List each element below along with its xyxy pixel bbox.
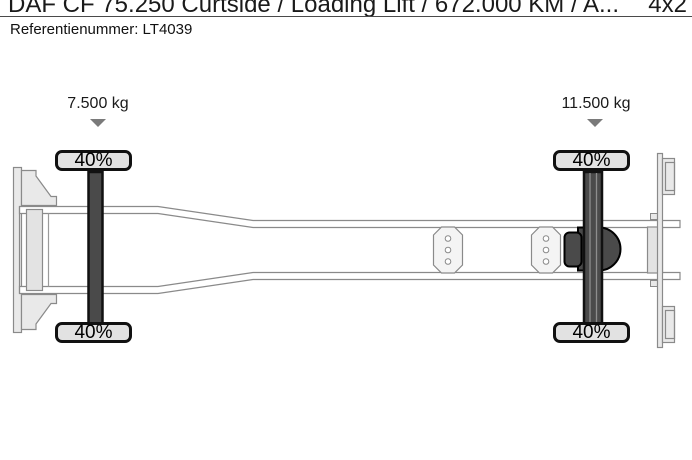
load-arrow-icon (90, 119, 106, 127)
rear-axle-wheel-1: 40% (553, 150, 630, 171)
crossmember-plate-2 (532, 227, 561, 273)
rear-axle (584, 172, 602, 328)
chassis-drawing (0, 0, 692, 460)
tail-lift-frame (658, 154, 675, 348)
load-arrow-icon (587, 119, 603, 127)
front-axle-wheel-2: 40% (55, 322, 132, 343)
rear-axle-wheel-2: 40% (553, 322, 630, 343)
front-crossmember (27, 210, 49, 291)
listing-image-page: DAF CF 75.250 Curtside / Loading Lift / … (0, 0, 692, 460)
front-axle-load-label: 7.500 kg (38, 95, 158, 113)
crossmember-plate-1 (434, 227, 463, 273)
front-axle-wheel-1: 40% (55, 150, 132, 171)
rear-axle-load-label: 11.500 kg (536, 95, 656, 113)
front-axle (89, 172, 103, 328)
